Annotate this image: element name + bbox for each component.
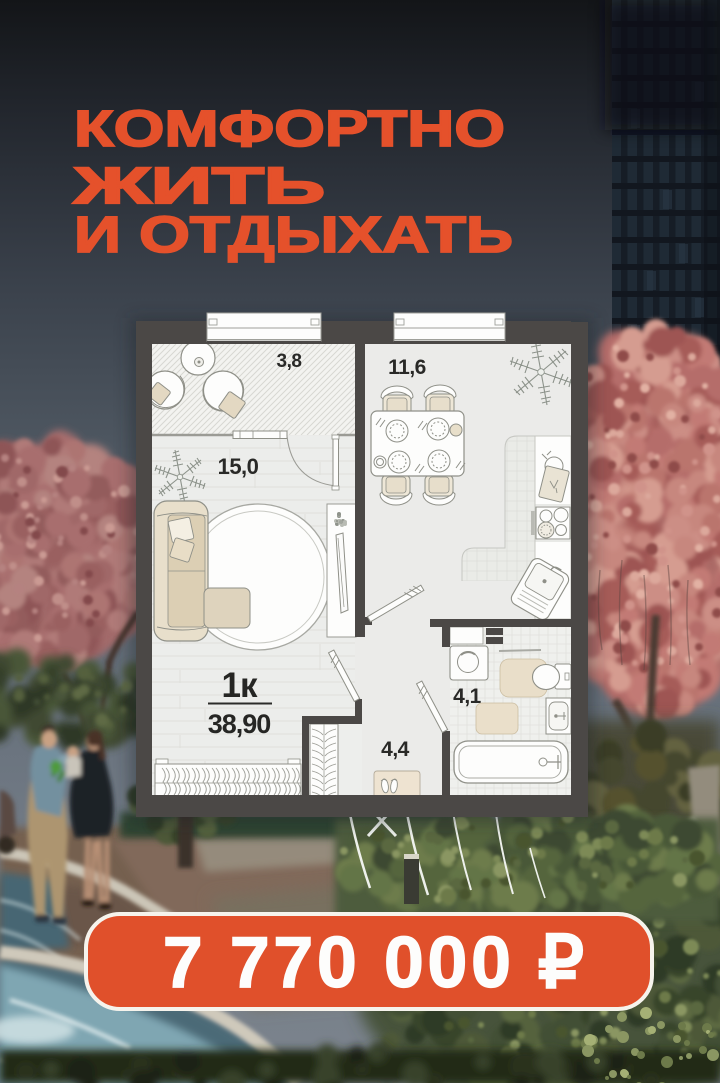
svg-text:38,90: 38,90 bbox=[208, 709, 271, 739]
svg-text:15,0: 15,0 bbox=[218, 454, 259, 479]
svg-text:КОМФОРТНО: КОМФОРТНО bbox=[74, 100, 505, 157]
svg-text:1к: 1к bbox=[222, 666, 258, 705]
svg-text:11,6: 11,6 bbox=[388, 356, 426, 379]
svg-text:4,4: 4,4 bbox=[381, 738, 410, 761]
svg-text:4,1: 4,1 bbox=[453, 685, 482, 708]
svg-text:3,8: 3,8 bbox=[277, 351, 302, 372]
svg-text:И ОТДЫХАТЬ: И ОТДЫХАТЬ bbox=[74, 206, 513, 263]
